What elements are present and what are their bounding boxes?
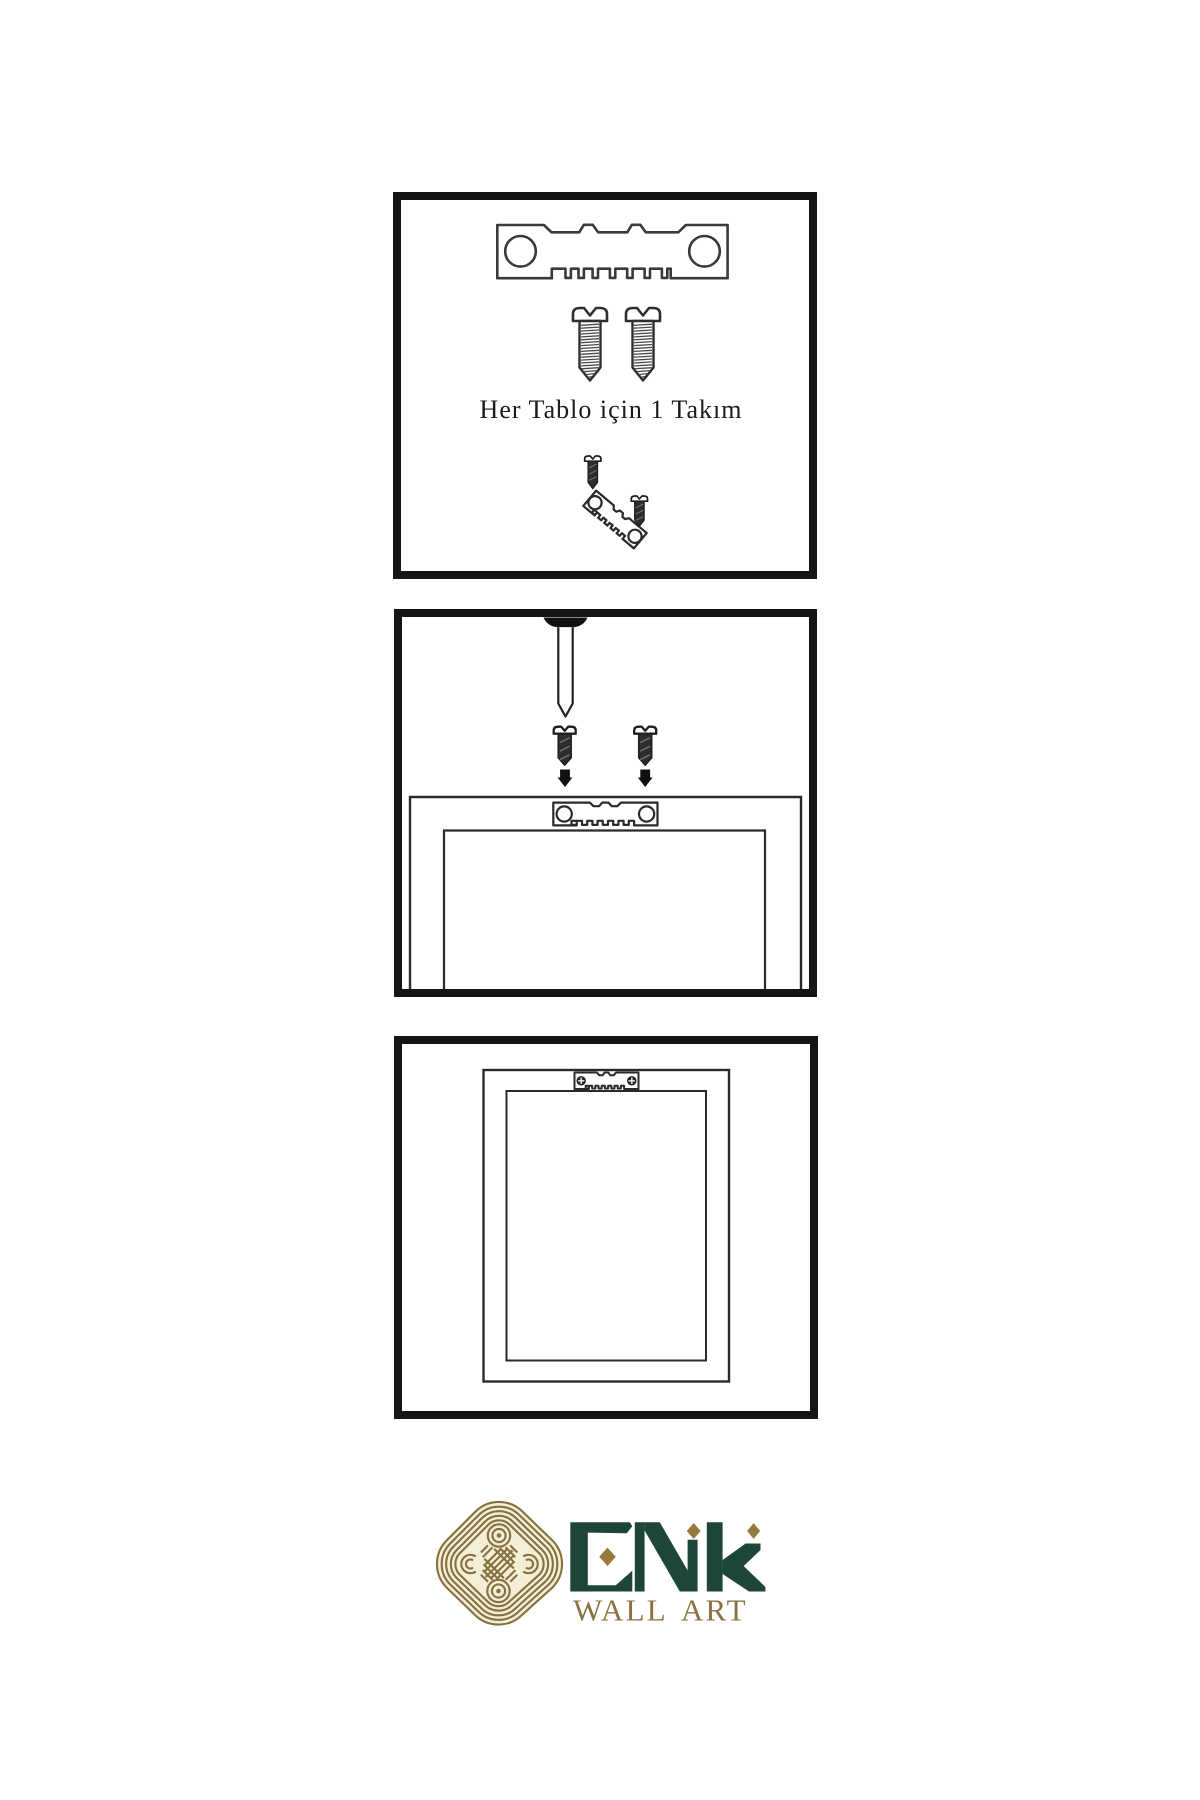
svg-text:WALL ART: WALL ART bbox=[573, 1593, 748, 1628]
svg-text:Her Tablo için 1 Takım: Her Tablo için 1 Takım bbox=[480, 395, 743, 424]
